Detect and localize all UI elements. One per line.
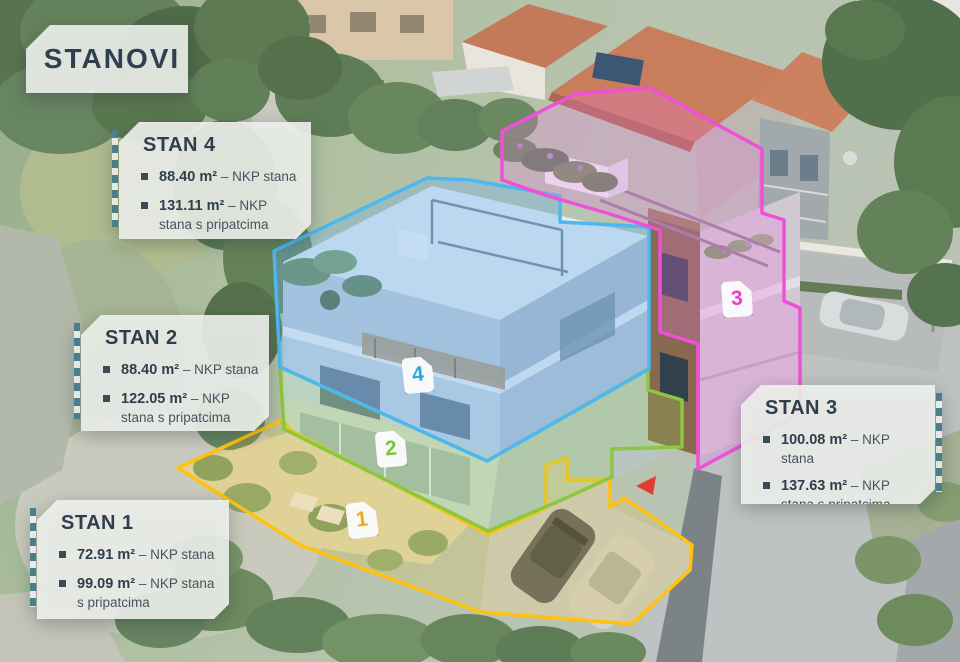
area-value: 72.91 m² [77, 547, 135, 563]
area-item: 100.08 m² – NKP stana [763, 431, 925, 467]
area-value: 137.63 m² [781, 478, 847, 494]
area-item: 99.09 m² – NKP stana s pripatcima [59, 575, 219, 611]
dash-decoration [936, 393, 942, 492]
area-value: 100.08 m² [781, 432, 847, 448]
bullet-icon [141, 173, 148, 180]
area-value: 88.40 m² [159, 169, 217, 185]
bullet-icon [763, 436, 770, 443]
dash-decoration [74, 323, 80, 419]
page-title: STANOVI [44, 43, 180, 75]
area-item: 88.40 m² – NKP stana [141, 168, 301, 187]
area-item: 88.40 m² – NKP stana [103, 361, 259, 380]
bullet-icon [103, 366, 110, 373]
badge-number: 1 [355, 507, 370, 532]
card-title: STAN 3 [765, 397, 925, 420]
card-stan-4: STAN 4 88.40 m² – NKP stana 131.11 m² – … [119, 122, 311, 239]
title-card: STANOVI [26, 25, 188, 93]
bullet-icon [141, 202, 148, 209]
area-value: 88.40 m² [121, 362, 179, 378]
area-label: – NKP stana [139, 547, 215, 562]
bullet-icon [103, 395, 110, 402]
card-stan-1: STAN 1 72.91 m² – NKP stana 99.09 m² – N… [37, 500, 229, 619]
presentation-slide: 4 2 1 3 STANOVI STAN 4 88.40 m² – NKP st… [0, 0, 960, 662]
area-label: – NKP stana [183, 362, 259, 377]
card-stan-2: STAN 2 88.40 m² – NKP stana 122.05 m² – … [81, 315, 269, 431]
card-title: STAN 4 [143, 134, 301, 157]
area-item: 122.05 m² – NKP stana s pripatcima [103, 390, 259, 426]
area-label: – NKP stana [221, 169, 297, 184]
area-value: 99.09 m² [77, 576, 135, 592]
card-title: STAN 2 [105, 327, 259, 350]
bullet-icon [59, 551, 66, 558]
area-value: 122.05 m² [121, 391, 187, 407]
area-item: 72.91 m² – NKP stana [59, 546, 219, 565]
area-item: 131.11 m² – NKP stana s pripatcima [141, 197, 301, 233]
bullet-icon [59, 580, 66, 587]
badge-number: 3 [730, 287, 743, 312]
bullet-icon [763, 482, 770, 489]
card-title: STAN 1 [61, 512, 219, 535]
area-value: 131.11 m² [159, 198, 224, 214]
dash-decoration [30, 508, 36, 607]
card-stan-3: STAN 3 100.08 m² – NKP stana 137.63 m² –… [741, 385, 935, 504]
badge-number: 4 [411, 362, 425, 387]
dash-decoration [112, 130, 118, 227]
badge-number: 2 [384, 437, 398, 462]
